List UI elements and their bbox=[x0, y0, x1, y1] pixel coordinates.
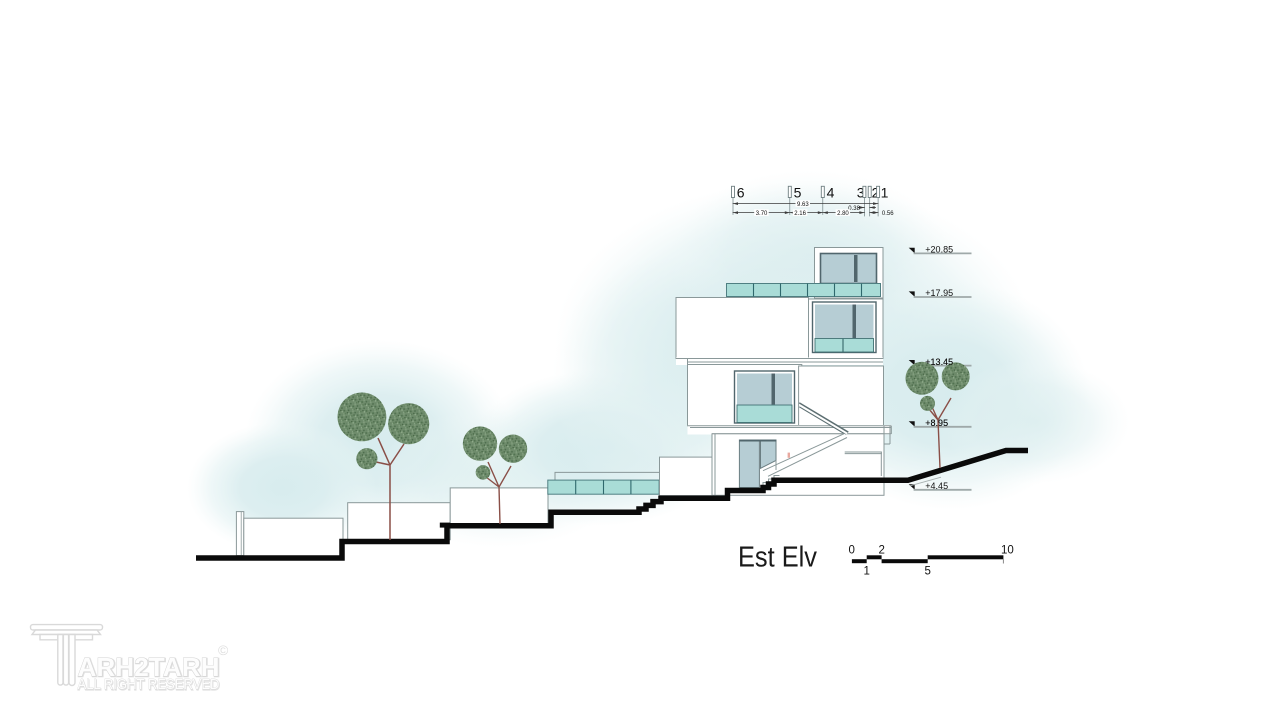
svg-text:5: 5 bbox=[925, 566, 931, 578]
svg-text:+17.95: +17.95 bbox=[925, 288, 953, 298]
svg-text:Est Elv: Est Elv bbox=[738, 542, 818, 574]
svg-text:1: 1 bbox=[881, 185, 889, 201]
svg-text:3.70: 3.70 bbox=[756, 211, 768, 217]
svg-text:0: 0 bbox=[849, 545, 855, 557]
svg-text:9.63: 9.63 bbox=[797, 202, 809, 208]
svg-text:+4.45: +4.45 bbox=[925, 481, 948, 491]
svg-text:2.80: 2.80 bbox=[837, 211, 849, 217]
svg-text:1: 1 bbox=[864, 566, 870, 578]
svg-text:©: © bbox=[218, 642, 229, 658]
svg-text:+13.45: +13.45 bbox=[925, 357, 953, 367]
svg-text:+20.85: +20.85 bbox=[925, 245, 953, 255]
svg-text:0.56: 0.56 bbox=[882, 211, 894, 217]
svg-text:+8.95: +8.95 bbox=[925, 418, 948, 428]
svg-text:2.16: 2.16 bbox=[794, 211, 806, 217]
svg-text:10: 10 bbox=[1001, 545, 1014, 557]
svg-text:2: 2 bbox=[879, 545, 885, 557]
svg-text:0.38: 0.38 bbox=[848, 206, 860, 212]
svg-text:6: 6 bbox=[737, 185, 745, 201]
svg-text:ALL RIGHT RESERVED: ALL RIGHT RESERVED bbox=[78, 676, 220, 693]
svg-text:4: 4 bbox=[827, 185, 835, 201]
svg-text:5: 5 bbox=[794, 185, 802, 201]
